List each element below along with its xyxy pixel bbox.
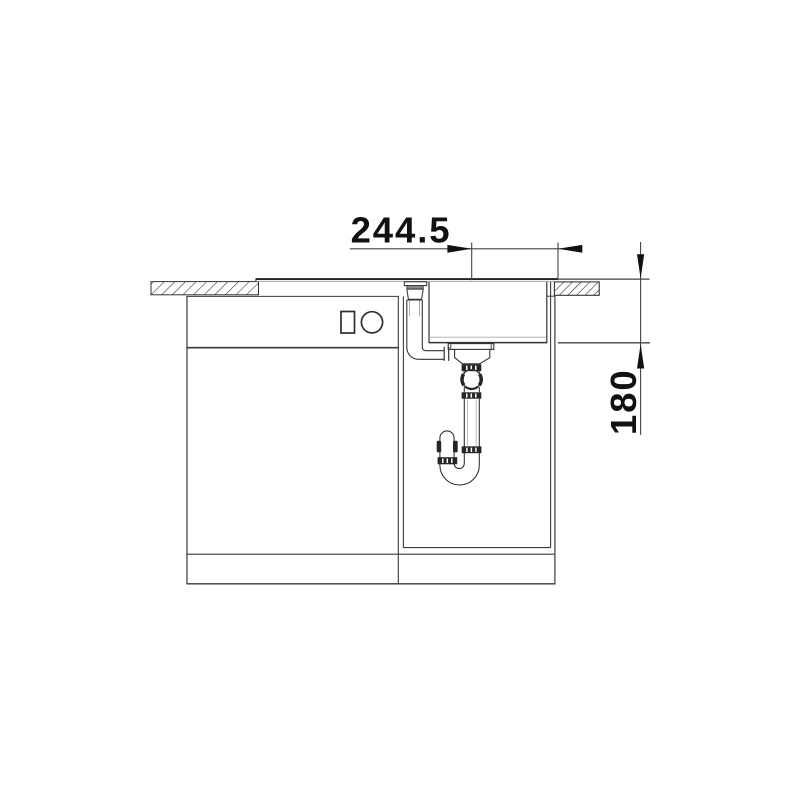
svg-text:180: 180 [603,368,644,435]
svg-text:244.5: 244.5 [351,210,452,251]
